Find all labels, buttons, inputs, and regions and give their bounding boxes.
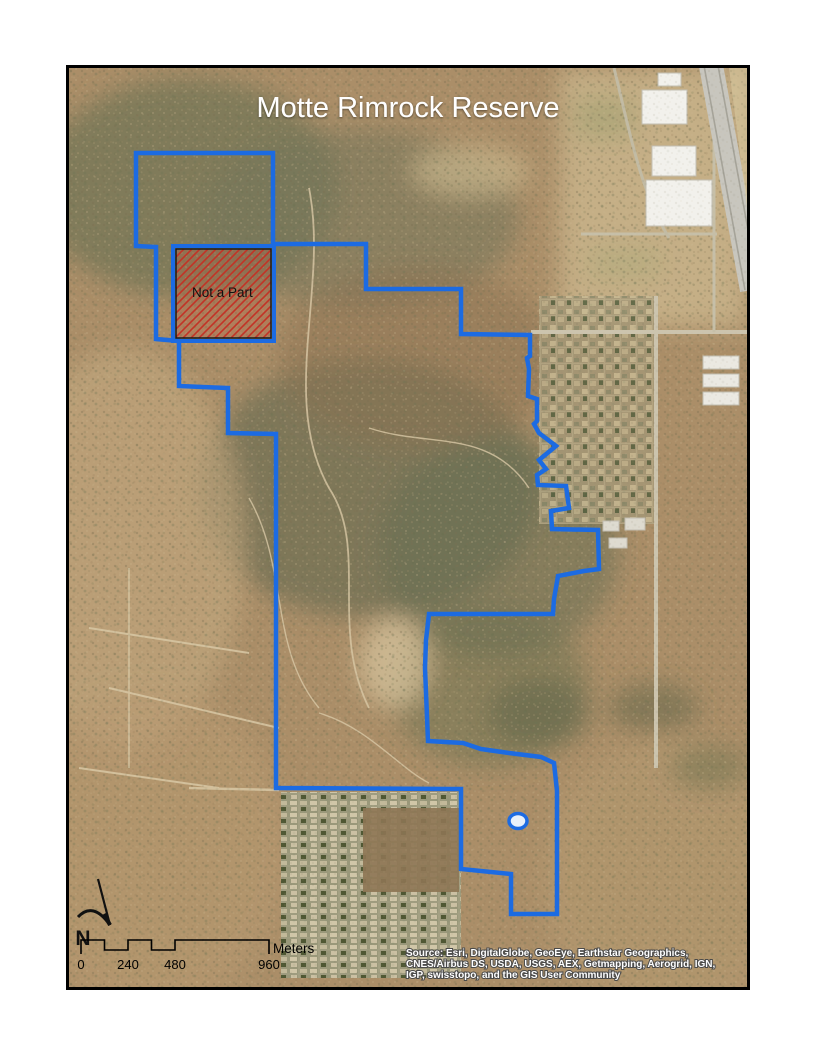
scale-tick-240: 240 xyxy=(117,957,139,972)
map-canvas: Not a Part Motte Rimrock Reserve N 0 240 xyxy=(69,68,747,987)
scale-tick-480: 480 xyxy=(164,957,186,972)
scale-unit-label: Meters xyxy=(273,941,315,956)
not-a-part-label: Not a Part xyxy=(192,285,253,300)
not-a-part-parcel: Not a Part xyxy=(173,246,274,341)
attribution-line1: Source: Esri, DigitalGlobe, GeoEye, Eart… xyxy=(406,948,689,959)
attribution-line3: IGP, swisstopo, and the GIS User Communi… xyxy=(406,970,621,981)
scale-tick-960: 960 xyxy=(258,957,280,972)
attribution-line2: CNES/Airbus DS, USDA, USGS, AEX, Getmapp… xyxy=(406,959,716,970)
satellite-terrain xyxy=(69,68,747,987)
map-frame: Not a Part Motte Rimrock Reserve N 0 240 xyxy=(66,65,750,990)
scale-tick-0: 0 xyxy=(77,957,84,972)
north-arrow-label: N xyxy=(75,927,90,950)
map-title: Motte Rimrock Reserve xyxy=(257,92,560,124)
pond-feature xyxy=(509,814,527,829)
map-document-page: Not a Part Motte Rimrock Reserve N 0 240 xyxy=(0,0,816,1056)
